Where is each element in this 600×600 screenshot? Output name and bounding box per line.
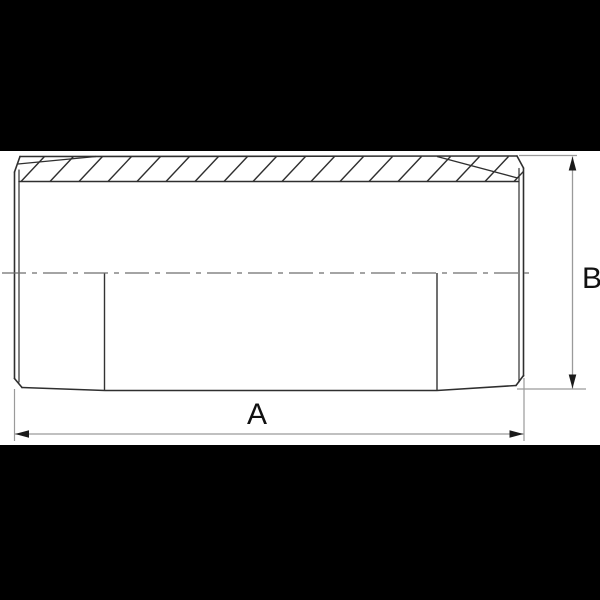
screenshot-canvas: A B bbox=[0, 0, 600, 600]
dim-b-label: B bbox=[582, 262, 600, 295]
paper-sheet bbox=[0, 151, 600, 445]
pipe-nipple-drawing: A B bbox=[0, 0, 600, 600]
dim-a-label: A bbox=[247, 398, 267, 431]
